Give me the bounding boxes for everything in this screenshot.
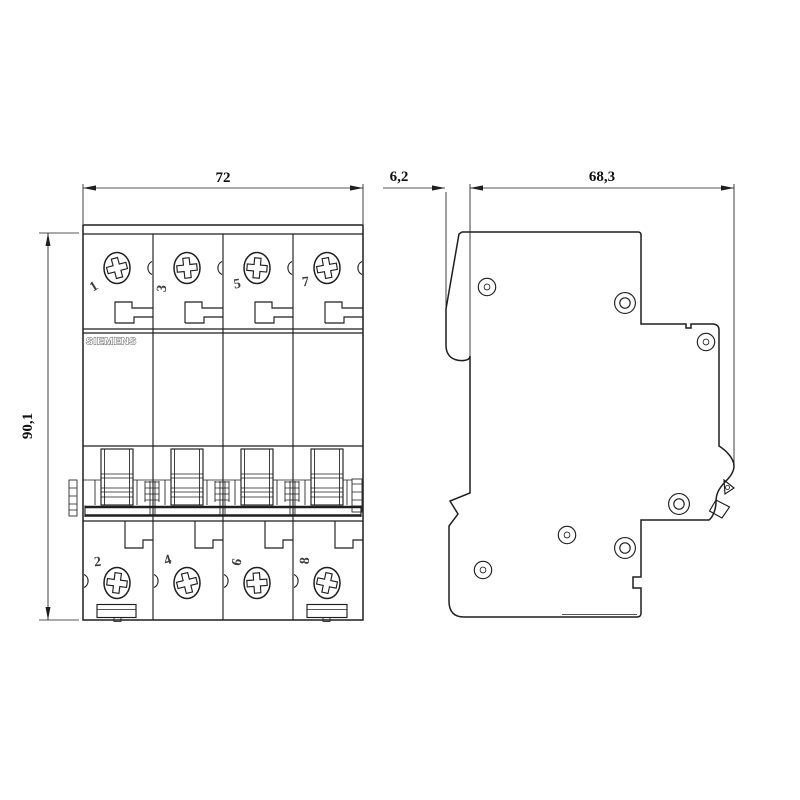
pole-number: 7 [301, 275, 310, 291]
toggle-ribs [101, 474, 133, 497]
oval-notch [224, 575, 228, 588]
terminal-notch [125, 521, 153, 548]
mounting-clip [307, 605, 347, 622]
terminal-notch [185, 317, 223, 323]
rivet-inner [564, 532, 570, 538]
front-body [83, 225, 363, 620]
screw-cross-slot [106, 572, 128, 594]
front-width-dimension: 72 [83, 170, 363, 224]
rivet-inner [703, 339, 709, 345]
terminal-notch [255, 317, 293, 323]
link-pin [215, 481, 229, 515]
rivet-outer [669, 494, 690, 515]
side-profile-outline [446, 232, 734, 617]
oval-notch [288, 262, 292, 275]
rivet-outer [615, 538, 636, 559]
oval-notch [154, 575, 158, 588]
pole-number: 3 [155, 284, 171, 293]
screw-head [104, 568, 130, 599]
screw-cross-slot [315, 571, 339, 595]
pole-number: 4 [162, 552, 173, 568]
screw-cross-slot [315, 256, 338, 279]
screw-head [314, 568, 340, 599]
link-pin [285, 481, 299, 515]
technical-drawing-page: 72 90,1 1 [0, 0, 800, 800]
dimension-value-offset: 6,2 [390, 169, 409, 185]
side-depth-dimension: 68,3 [470, 169, 734, 464]
rivet [669, 494, 690, 515]
rivet [615, 538, 636, 559]
screw-terminal: 1 [87, 253, 130, 296]
rivet [558, 526, 575, 543]
tab-ribs [352, 484, 362, 506]
oval-notch [294, 575, 298, 588]
toggle-assembly [69, 446, 363, 521]
toggle-switch [241, 449, 273, 505]
rivet-inner [484, 284, 490, 290]
pole-number: 6 [230, 557, 246, 567]
screw-terminals-top: 1 3 5 7 [87, 253, 362, 296]
tab-ribs [69, 488, 77, 510]
terminal-notch [195, 521, 223, 548]
oval-notch [358, 262, 362, 275]
dimension-value-depth: 68,3 [589, 169, 615, 185]
front-height-dimension: 90,1 [20, 233, 79, 620]
terminal-notches-top [115, 302, 363, 323]
rivet [478, 278, 495, 295]
terminal-notch [335, 521, 363, 548]
screw-terminal: 7 [301, 253, 340, 291]
screw-terminal: 5 [233, 253, 270, 293]
recess-shoulders [83, 480, 352, 505]
mounting-clip [97, 605, 136, 622]
toggle-switch [311, 449, 343, 505]
oval-notch [84, 575, 88, 588]
front-view: 72 90,1 1 [20, 170, 363, 622]
screw-cross-slot [246, 257, 268, 279]
latch-pin [726, 486, 730, 490]
terminal-notch [115, 317, 153, 323]
toggle-link-pins [145, 481, 299, 515]
arrowhead-top [46, 233, 51, 246]
rivet [615, 293, 636, 314]
link-pin [145, 481, 159, 515]
rivet-inner [620, 543, 630, 553]
screw-terminal: 2 [93, 555, 130, 599]
terminal-notches-bottom [125, 521, 363, 548]
arrowhead-right [350, 185, 363, 190]
screw-terminal: 3 [155, 253, 200, 294]
rivet-outer [615, 293, 636, 314]
screw-cross-slot [105, 256, 129, 280]
arrowhead-right [721, 185, 734, 190]
rivet-inner [480, 567, 486, 573]
clip-body [307, 605, 347, 618]
siemens-logo: SIEMENS [86, 336, 137, 348]
arrowhead-right [432, 185, 445, 190]
screw-head [174, 253, 200, 284]
toggle-ribs [171, 474, 203, 497]
rivet [474, 561, 491, 578]
oval-notch [218, 262, 222, 275]
screw-head [244, 568, 270, 599]
terminal-notch [265, 521, 293, 548]
screw-terminal: 6 [230, 557, 270, 598]
rivet-inner [674, 499, 684, 509]
tab-outline [69, 480, 77, 516]
pole-number: 1 [87, 279, 101, 295]
arrowhead-left [470, 185, 483, 190]
rivet-outer [697, 333, 714, 350]
circuit-breaker-dimension-drawing: 72 90,1 1 [0, 0, 800, 800]
release-tab-left [69, 480, 77, 516]
rivet-outer [558, 526, 575, 543]
rivet-outer [474, 561, 491, 578]
clip-body [97, 605, 136, 618]
screw-cross-slot [175, 571, 199, 595]
pole-number: 8 [298, 557, 313, 565]
rivet [697, 333, 714, 350]
toggle-switch [101, 449, 133, 505]
screw-terminals-bottom: 2 4 6 8 [84, 552, 340, 598]
oval-notch [148, 262, 152, 275]
dimension-value-width: 72 [216, 170, 231, 186]
dimension-value-height: 90,1 [20, 413, 36, 439]
side-offset-dimension: 6,2 [383, 169, 446, 317]
screw-terminal: 8 [298, 557, 340, 599]
pole-number: 5 [233, 277, 242, 293]
terminal-notch [325, 317, 363, 323]
rivet-inner [620, 298, 630, 308]
mounting-clips [97, 605, 347, 622]
screw-terminal: 4 [162, 552, 200, 598]
toggle-ribs [311, 474, 343, 497]
arrowhead-left [83, 185, 96, 190]
screw-head [244, 253, 270, 284]
toggle-switch [171, 449, 203, 505]
side-view: 6,2 68,3 [383, 169, 734, 617]
pole-number: 2 [93, 555, 102, 571]
screw-head [314, 253, 340, 284]
arrowhead-bottom [46, 607, 51, 620]
rivet-outer [478, 278, 495, 295]
toggle-ribs [241, 474, 273, 497]
screw-cross-slot [176, 257, 198, 279]
screw-cross-slot [246, 572, 267, 593]
